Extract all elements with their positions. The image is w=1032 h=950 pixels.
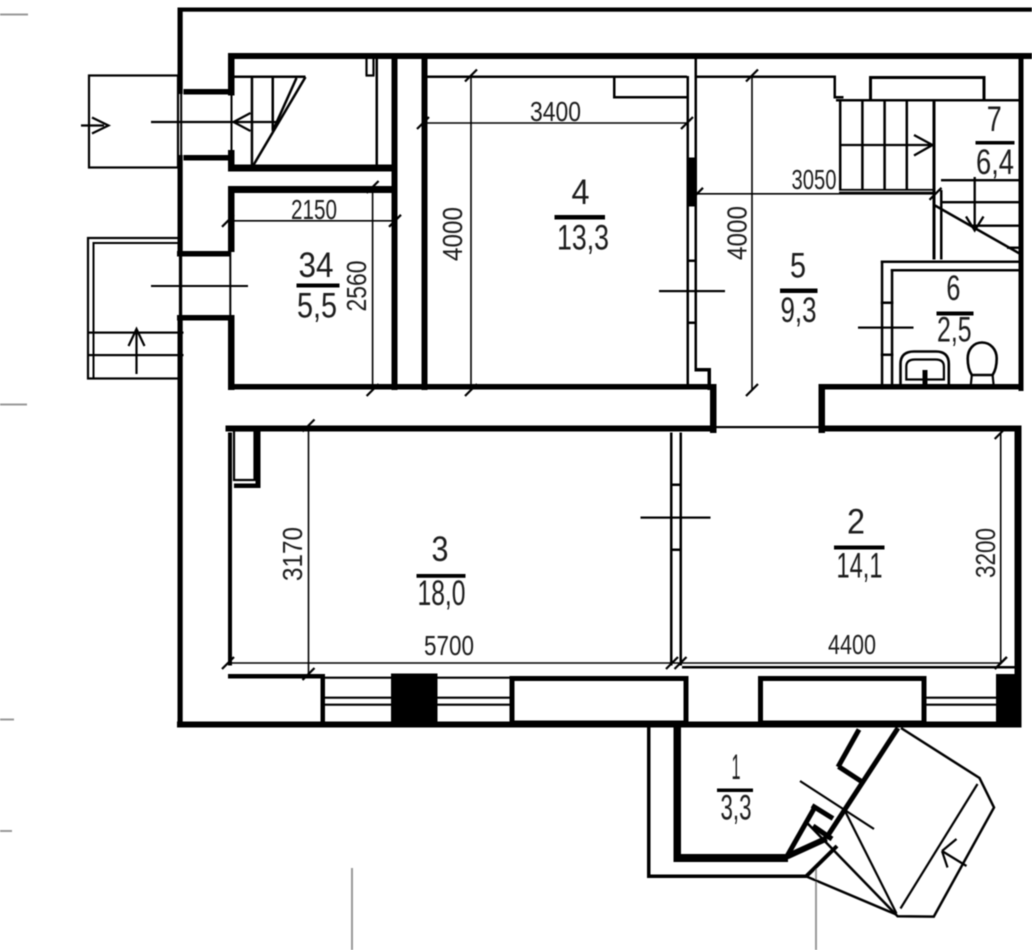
svg-text:4: 4 [572,173,590,212]
svg-text:1: 1 [732,748,741,787]
svg-text:2560: 2560 [341,261,372,312]
svg-text:4000: 4000 [722,206,753,260]
svg-text:3050: 3050 [792,164,837,195]
svg-text:4000: 4000 [437,207,468,261]
svg-text:6: 6 [946,269,960,308]
svg-text:4400: 4400 [828,629,876,660]
svg-text:9,3: 9,3 [781,291,817,330]
svg-text:3,3: 3,3 [721,789,752,828]
svg-text:13,3: 13,3 [557,219,609,258]
svg-text:3170: 3170 [277,527,308,581]
svg-text:5700: 5700 [424,630,474,661]
svg-text:34: 34 [299,246,334,285]
svg-text:5: 5 [790,247,806,286]
svg-text:18,0: 18,0 [418,574,466,613]
svg-text:6,4: 6,4 [976,143,1014,182]
svg-text:3: 3 [432,530,449,569]
svg-text:3200: 3200 [970,528,1001,578]
svg-text:2,5: 2,5 [937,311,972,350]
svg-text:5,5: 5,5 [297,287,337,326]
svg-text:14,1: 14,1 [837,547,883,586]
svg-text:7: 7 [987,100,1002,139]
svg-text:2: 2 [847,503,865,542]
svg-text:2150: 2150 [291,194,337,225]
svg-text:3400: 3400 [530,96,581,127]
